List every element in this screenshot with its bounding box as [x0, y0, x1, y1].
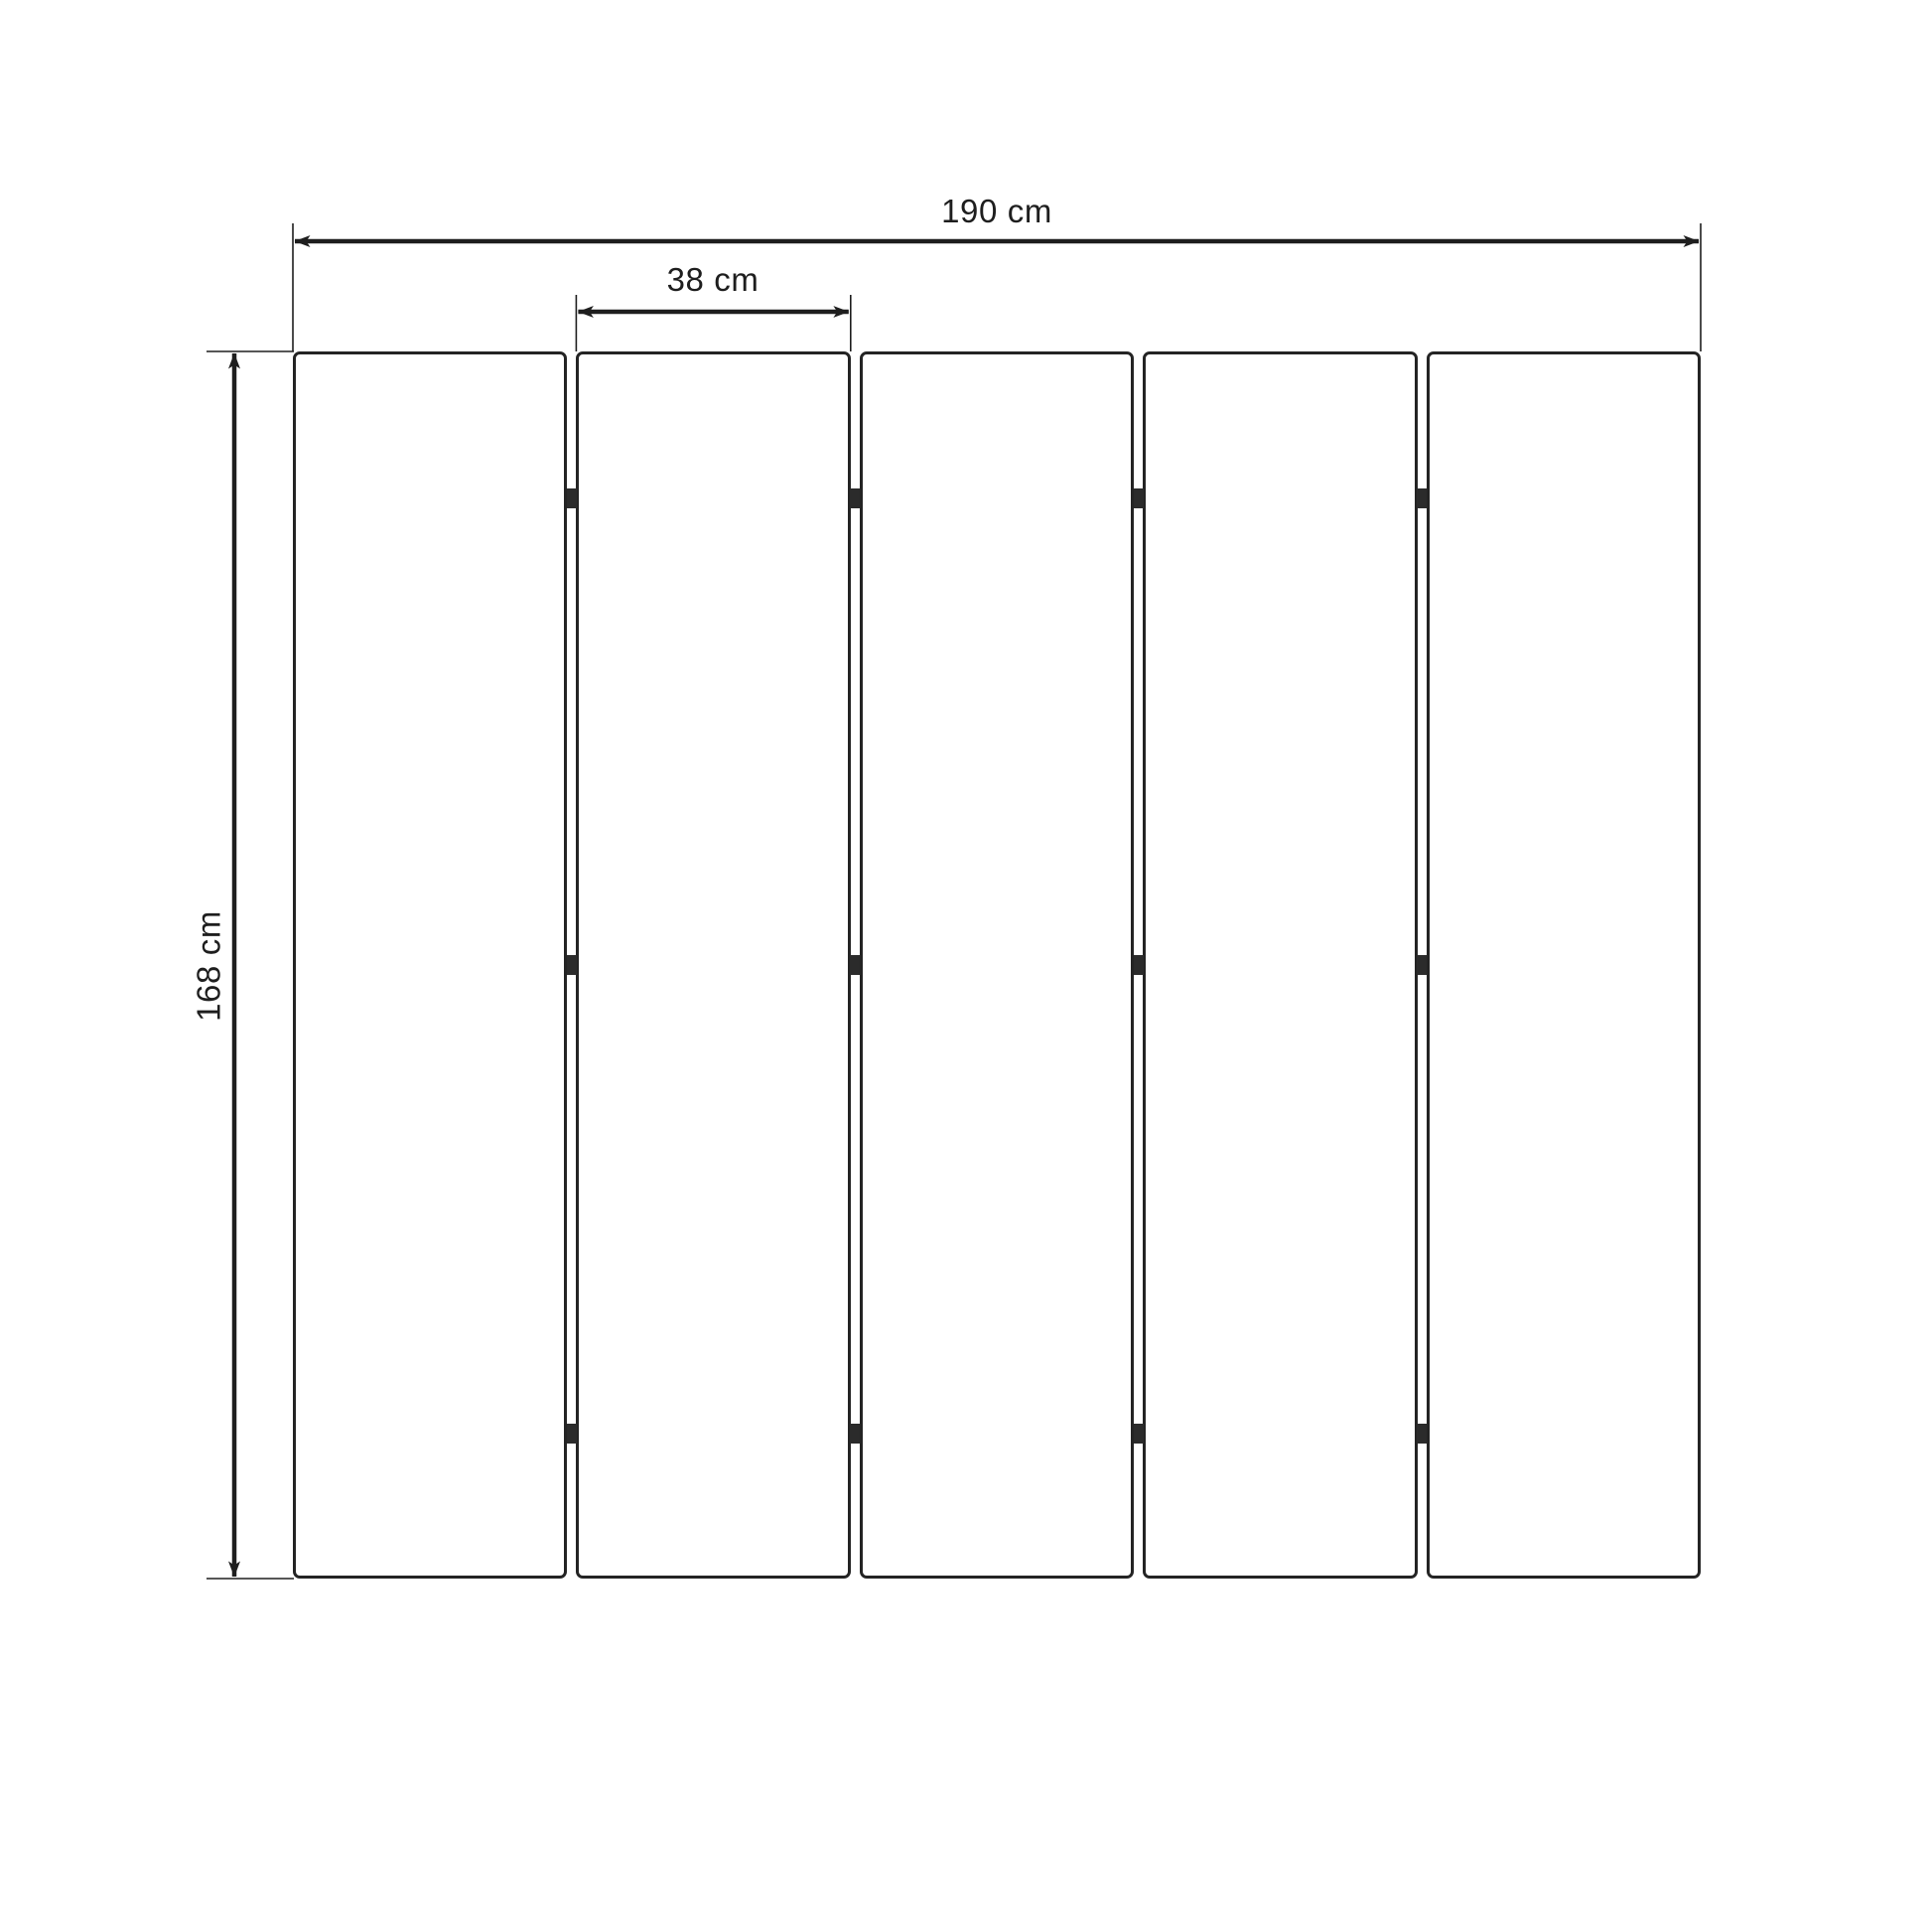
hinge-gap1-1: [567, 488, 577, 508]
screen-panel-4: [1143, 351, 1417, 1579]
screen-panel-2: [576, 351, 850, 1579]
screen-panel-5: [1427, 351, 1701, 1579]
panel-dimension-diagram: 190 cm 38 cm 168 cm: [0, 0, 1932, 1932]
panel-width-label: 38 cm: [667, 263, 759, 296]
hinge-gap3-1: [1134, 488, 1144, 508]
total-width-label: 190 cm: [941, 195, 1052, 227]
screen-panel-1: [293, 351, 567, 1579]
screen-panel-3: [860, 351, 1134, 1579]
hinge-gap3-3: [1134, 1424, 1144, 1444]
hinge-gap3-2: [1134, 955, 1144, 975]
hinge-gap4-3: [1417, 1424, 1427, 1444]
hinge-gap2-1: [850, 488, 860, 508]
hinge-gap1-2: [567, 955, 577, 975]
hinge-gap2-2: [850, 955, 860, 975]
panel-row: [293, 351, 1701, 1579]
height-label: 168 cm: [193, 910, 225, 1022]
hinge-gap1-3: [567, 1424, 577, 1444]
hinge-gap2-3: [850, 1424, 860, 1444]
hinge-gap4-1: [1417, 488, 1427, 508]
hinge-gap4-2: [1417, 955, 1427, 975]
